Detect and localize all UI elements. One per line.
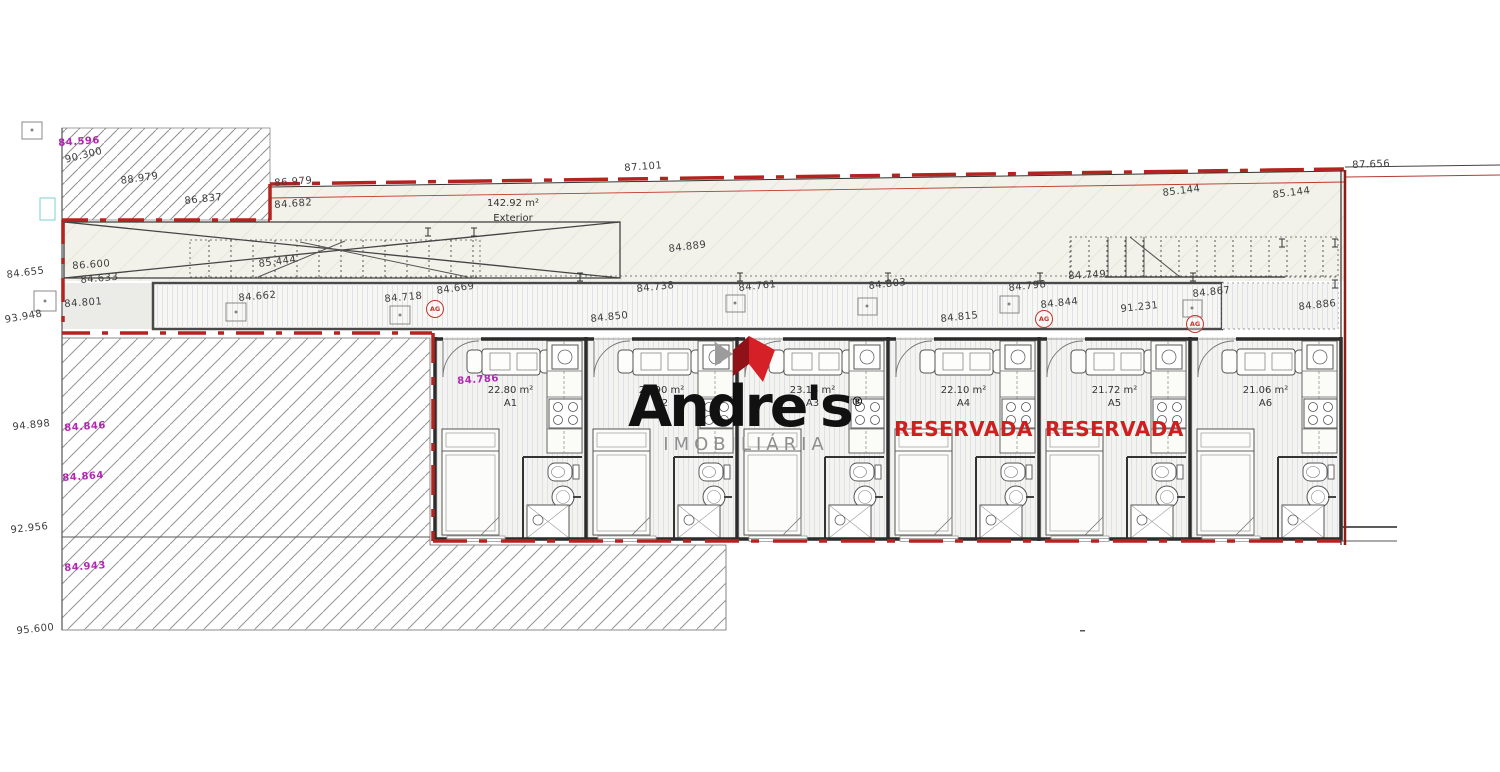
unit-id: A4: [919, 397, 1009, 410]
ag-marker: AG: [426, 300, 444, 318]
floor-plan: 90.30088.97986.83786.97984.68287.10187.6…: [0, 0, 1500, 772]
ag-marker: AG: [1186, 315, 1204, 333]
unit-area: 22.80 m²: [466, 384, 556, 397]
registered-mark: ®: [851, 395, 864, 410]
exterior-caption: Exterior: [493, 213, 532, 224]
elevation-label: 84.749: [1068, 269, 1107, 282]
unit-id: A5: [1070, 397, 1160, 410]
unit-area: 21.06 m²: [1221, 384, 1311, 397]
stairs-right: [1070, 237, 1338, 277]
unit-id: A6: [1221, 397, 1311, 410]
brand-name-text: Andre's: [628, 374, 851, 440]
unit-label-a5: 21.72 m²A5: [1070, 384, 1160, 410]
unit-id: A1: [466, 397, 556, 410]
stairs-left: [190, 240, 480, 277]
unit-label-a4: 22.10 m²A4: [919, 384, 1009, 410]
exterior-label: 142.92 m² Exterior: [458, 196, 568, 226]
exterior-area: 142.92 m²: [487, 198, 539, 209]
reserved-badge-a4: RESERVADA: [884, 417, 1044, 441]
ag-marker: AG: [1035, 310, 1053, 328]
brand-logo: Andre's® IMOBILIÁRIA: [615, 334, 877, 455]
reserved-badge-a5: RESERVADA: [1035, 417, 1195, 441]
unit-area: 22.10 m²: [919, 384, 1009, 397]
elevation-label: 87.656: [1352, 159, 1390, 171]
unit-label-a1: 22.80 m²A1: [466, 384, 556, 410]
unit-area: 21.72 m²: [1070, 384, 1160, 397]
brand-name: Andre's®: [615, 384, 877, 431]
unit-label-a6: 21.06 m²A6: [1221, 384, 1311, 410]
